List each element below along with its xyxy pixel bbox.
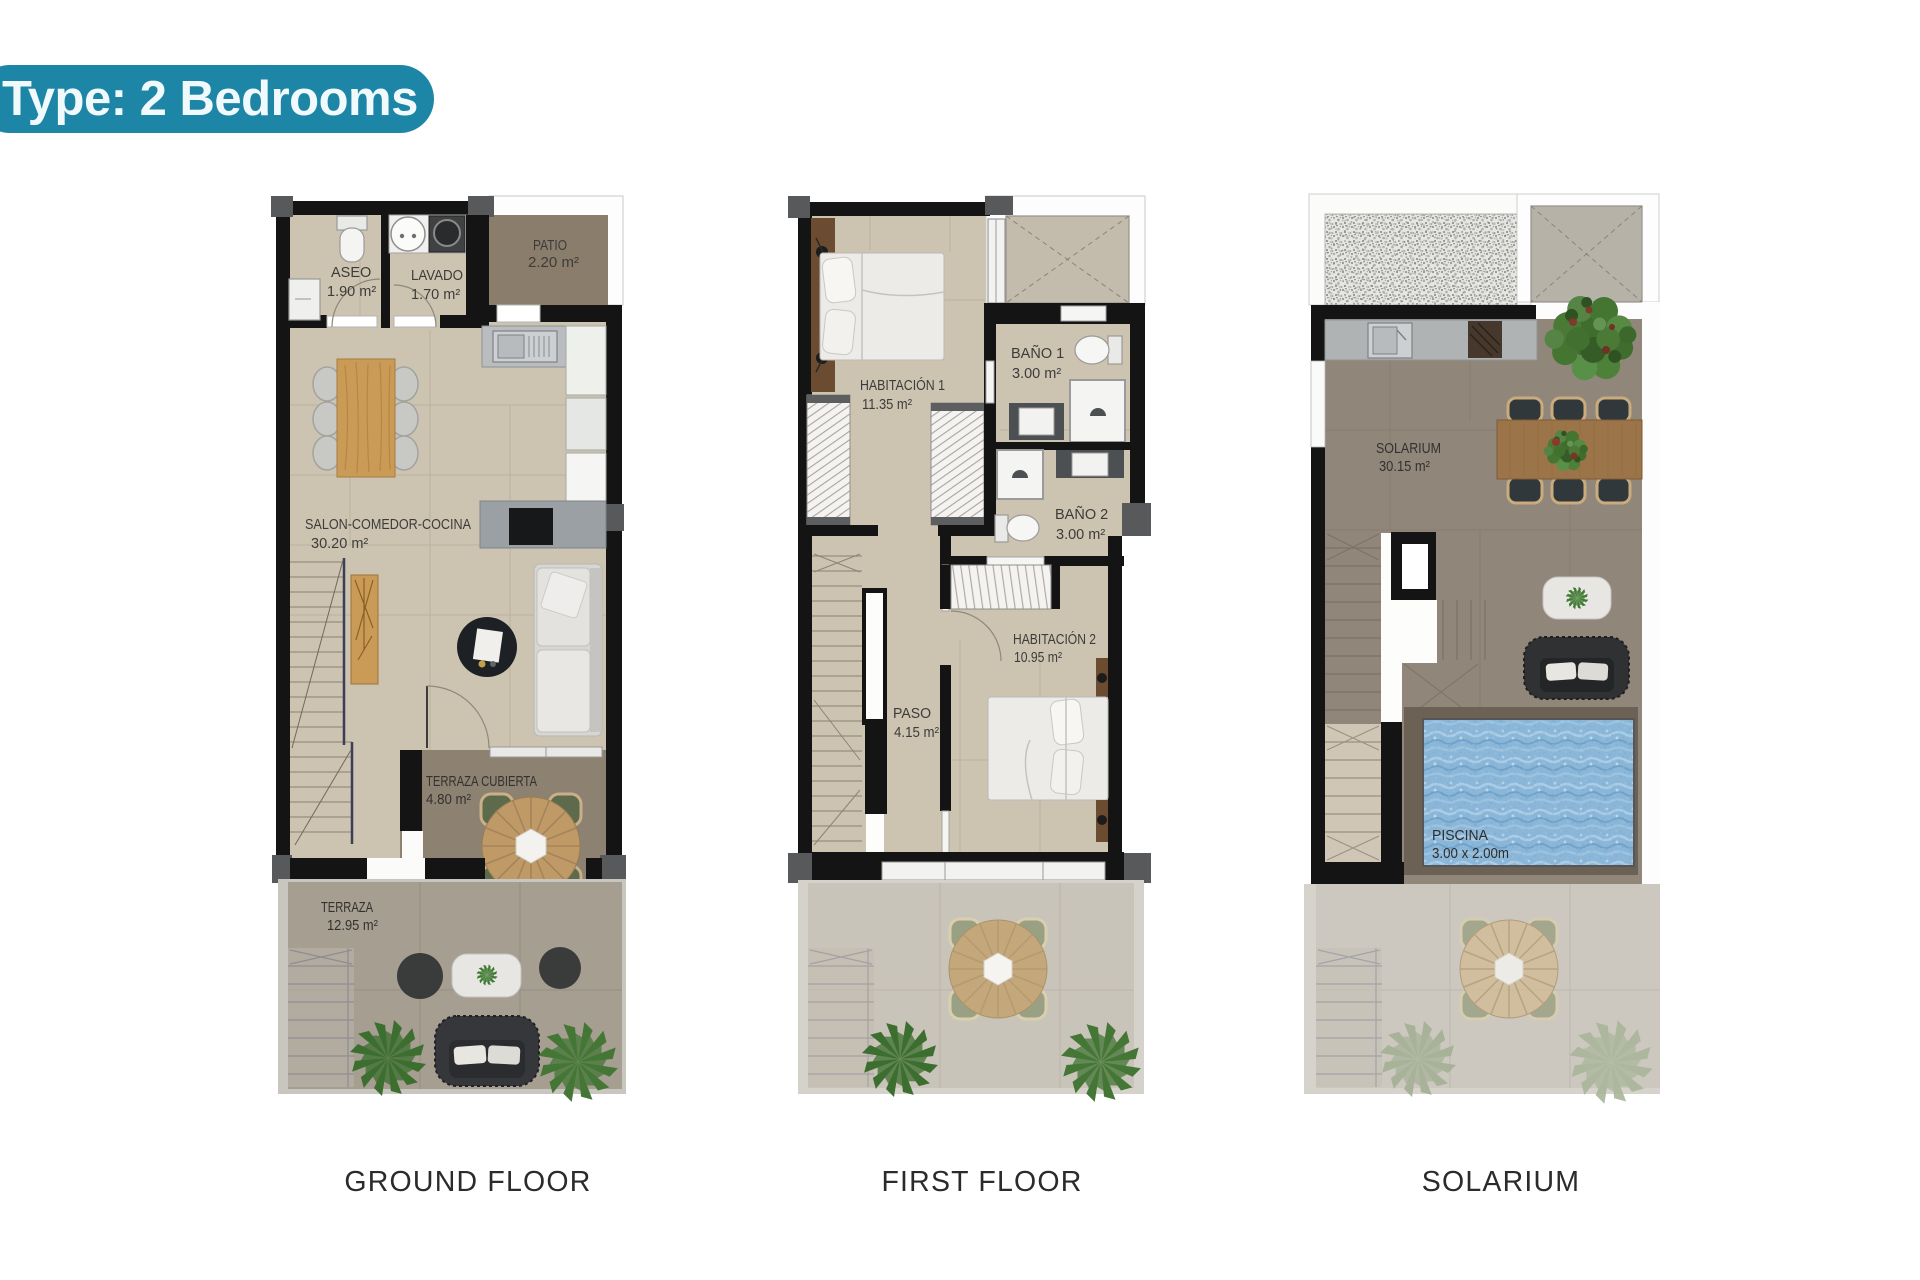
svg-text:2.20 m²: 2.20 m² [528, 255, 579, 271]
svg-text:4.80 m²: 4.80 m² [426, 792, 471, 808]
svg-text:TERRAZA: TERRAZA [321, 900, 373, 916]
svg-text:1.70 m²: 1.70 m² [411, 287, 460, 303]
svg-text:3.00 m²: 3.00 m² [1056, 527, 1105, 543]
svg-text:BAÑO 1: BAÑO 1 [1011, 345, 1064, 362]
svg-text:10.95 m²: 10.95 m² [1014, 650, 1062, 666]
svg-text:HABITACIÓN 1: HABITACIÓN 1 [860, 377, 945, 394]
svg-text:LAVADO: LAVADO [411, 268, 463, 284]
svg-text:4.15 m²: 4.15 m² [894, 725, 939, 741]
svg-text:PASO: PASO [893, 706, 931, 722]
svg-text:GROUND FLOOR: GROUND FLOOR [344, 1166, 591, 1198]
svg-text:1.90 m²: 1.90 m² [327, 284, 376, 300]
svg-text:SALON-COMEDOR-COCINA: SALON-COMEDOR-COCINA [305, 517, 471, 533]
svg-text:PATIO: PATIO [533, 238, 567, 254]
svg-text:FIRST FLOOR: FIRST FLOOR [881, 1166, 1082, 1198]
svg-text:ASEO: ASEO [331, 265, 371, 281]
svg-text:3.00 m²: 3.00 m² [1012, 366, 1061, 382]
svg-text:12.95 m²: 12.95 m² [327, 918, 378, 934]
svg-text:TERRAZA CUBIERTA: TERRAZA CUBIERTA [426, 774, 537, 790]
svg-text:3.00 x 2.00m: 3.00 x 2.00m [1432, 846, 1509, 862]
svg-text:30.20 m²: 30.20 m² [311, 536, 368, 552]
svg-text:HABITACIÓN 2: HABITACIÓN 2 [1013, 631, 1096, 648]
svg-text:PISCINA: PISCINA [1432, 828, 1488, 844]
svg-text:SOLARIUM: SOLARIUM [1376, 441, 1441, 457]
svg-text:11.35 m²: 11.35 m² [862, 397, 912, 413]
svg-text:BAÑO 2: BAÑO 2 [1055, 506, 1108, 523]
svg-text:30.15 m²: 30.15 m² [1379, 459, 1430, 475]
svg-text:SOLARIUM: SOLARIUM [1422, 1166, 1580, 1198]
